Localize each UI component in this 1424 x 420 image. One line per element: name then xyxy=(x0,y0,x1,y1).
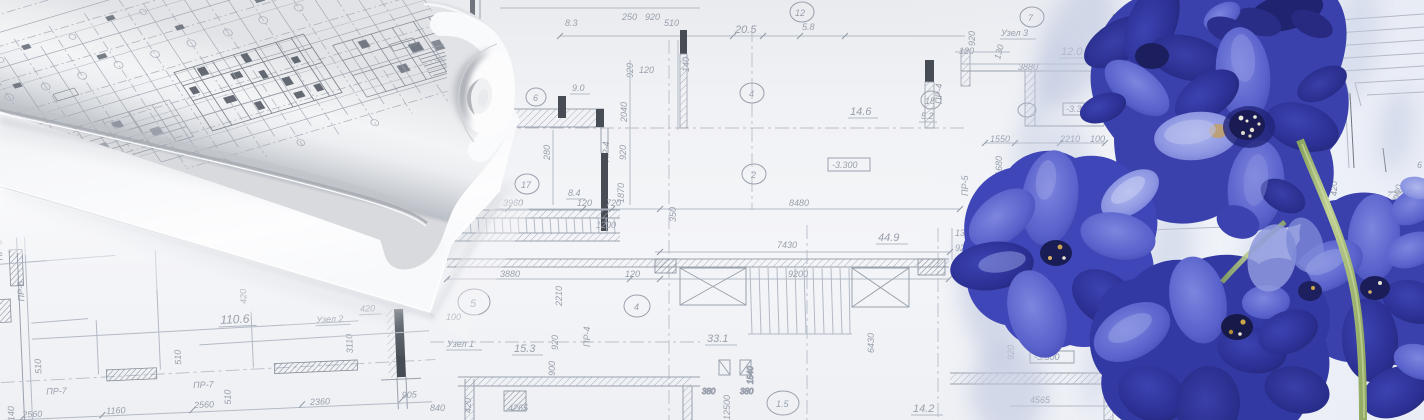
svg-text:9200: 9200 xyxy=(788,269,808,279)
svg-text:ПР-7: ПР-7 xyxy=(193,379,215,390)
svg-text:2: 2 xyxy=(750,170,756,180)
svg-text:920: 920 xyxy=(967,31,977,46)
svg-text:420: 420 xyxy=(463,398,473,413)
svg-text:14.2: 14.2 xyxy=(913,403,934,415)
svg-text:120: 120 xyxy=(639,65,654,75)
svg-text:5.2: 5.2 xyxy=(921,111,934,121)
svg-text:ПР-4: ПР-4 xyxy=(934,83,944,104)
svg-text:4: 4 xyxy=(749,89,754,99)
svg-text:250: 250 xyxy=(621,12,637,22)
svg-text:6: 6 xyxy=(1417,160,1422,170)
svg-text:905: 905 xyxy=(402,389,418,400)
svg-text:ПР-6: ПР-6 xyxy=(15,281,26,302)
svg-text:2210: 2210 xyxy=(554,286,564,307)
svg-text:510: 510 xyxy=(222,389,233,404)
svg-text:1540: 1540 xyxy=(746,366,755,384)
svg-text:-3.300: -3.300 xyxy=(832,160,858,170)
svg-text:2560: 2560 xyxy=(193,399,214,410)
svg-text:12: 12 xyxy=(795,8,805,18)
svg-text:4: 4 xyxy=(634,302,639,312)
svg-text:920: 920 xyxy=(618,145,628,160)
svg-text:8.4: 8.4 xyxy=(568,188,581,198)
svg-text:720: 720 xyxy=(606,198,621,208)
svg-text:2360: 2360 xyxy=(309,396,330,407)
svg-text:14.6: 14.6 xyxy=(850,106,872,118)
svg-text:44.9: 44.9 xyxy=(878,232,899,244)
svg-text:5.8: 5.8 xyxy=(802,22,815,32)
svg-text:Узел 1: Узел 1 xyxy=(446,339,474,349)
svg-text:120: 120 xyxy=(577,198,592,208)
svg-text:920: 920 xyxy=(550,335,560,350)
svg-text:510: 510 xyxy=(664,18,679,28)
svg-text:ПР-4: ПР-4 xyxy=(582,326,592,347)
svg-text:2040: 2040 xyxy=(619,102,629,123)
svg-text:Узел 3: Узел 3 xyxy=(1000,28,1028,38)
svg-text:4265: 4265 xyxy=(508,403,529,413)
svg-text:840: 840 xyxy=(430,403,445,413)
svg-text:9.0: 9.0 xyxy=(572,83,585,93)
svg-text:8.3: 8.3 xyxy=(565,18,578,28)
svg-text:15.3: 15.3 xyxy=(514,343,536,355)
svg-text:140: 140 xyxy=(6,406,17,420)
svg-text:920: 920 xyxy=(645,12,660,22)
svg-text:ПР-7: ПР-7 xyxy=(46,386,68,397)
svg-text:380: 380 xyxy=(702,387,716,396)
svg-text:17: 17 xyxy=(521,180,532,190)
svg-text:1160: 1160 xyxy=(106,405,126,416)
svg-text:33.1: 33.1 xyxy=(707,333,728,345)
svg-text:7430: 7430 xyxy=(777,240,797,250)
svg-text:12500: 12500 xyxy=(722,395,732,420)
svg-text:510: 510 xyxy=(173,350,184,365)
svg-text:3880: 3880 xyxy=(500,269,520,279)
svg-text:280: 280 xyxy=(542,145,552,161)
svg-text:6430: 6430 xyxy=(866,333,876,353)
svg-text:1.5: 1.5 xyxy=(776,399,790,409)
svg-text:380: 380 xyxy=(740,387,754,396)
svg-text:510: 510 xyxy=(33,359,44,374)
svg-text:20.5: 20.5 xyxy=(734,24,757,36)
svg-text:6: 6 xyxy=(533,93,538,103)
svg-text:ПР-5: ПР-5 xyxy=(960,174,970,196)
svg-text:8480: 8480 xyxy=(789,198,809,208)
svg-text:120: 120 xyxy=(625,269,640,279)
svg-text:900: 900 xyxy=(547,361,557,376)
